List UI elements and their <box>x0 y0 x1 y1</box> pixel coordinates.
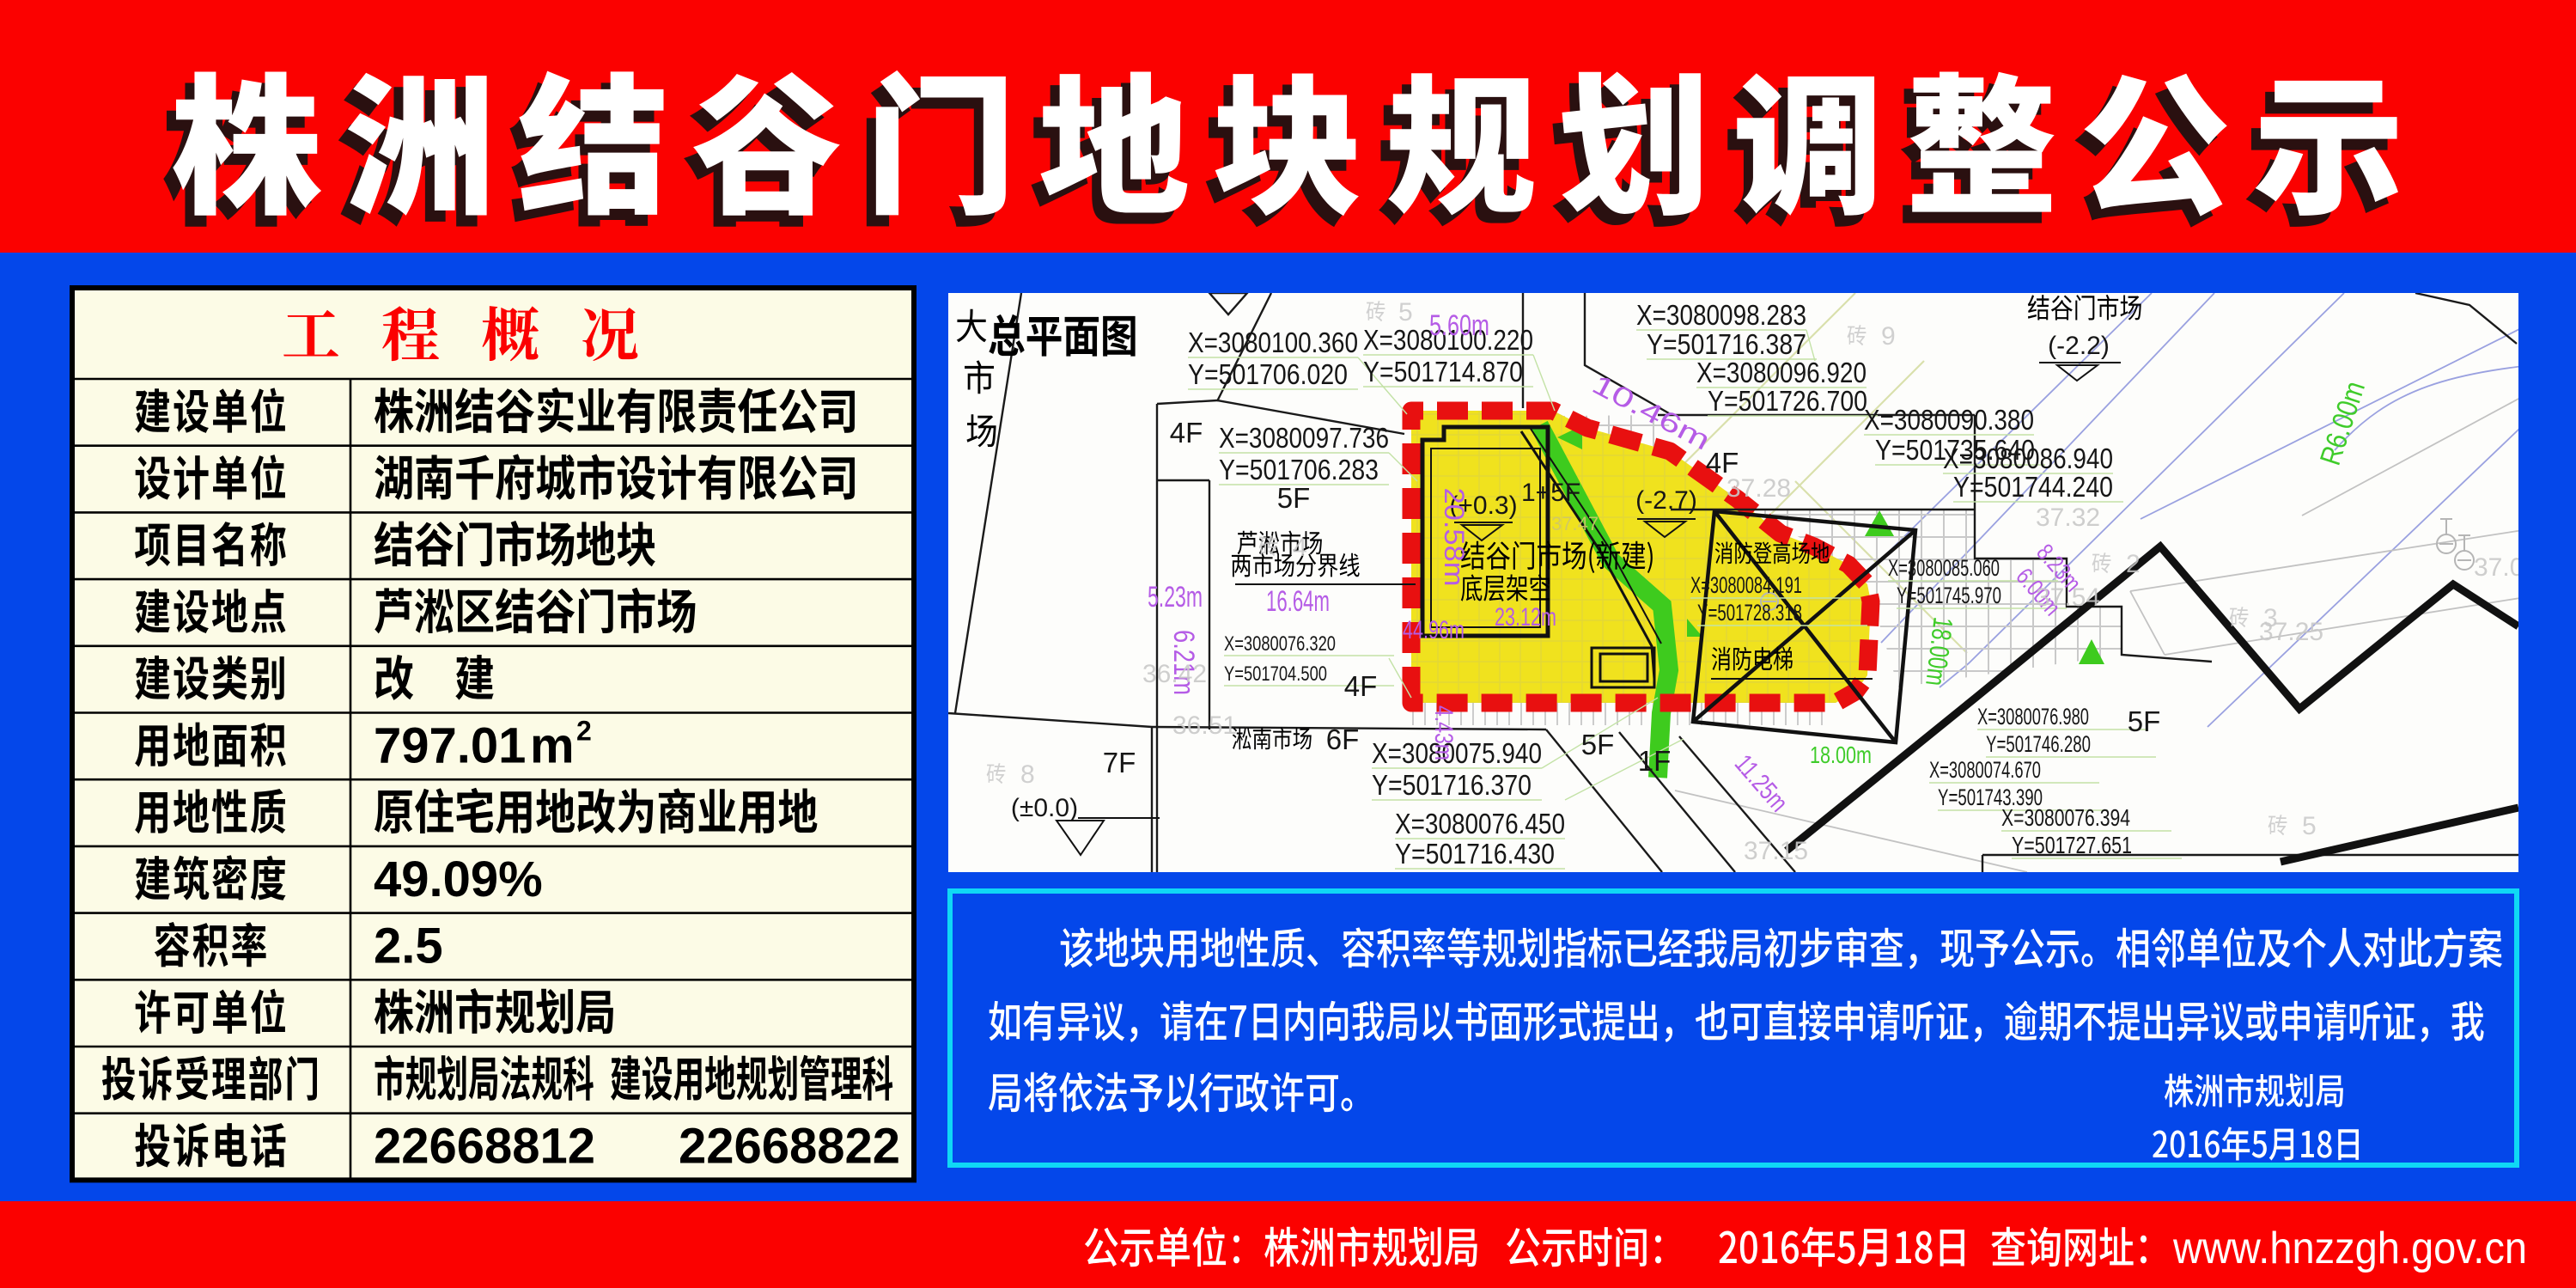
svg-text:Y=501727.651: Y=501727.651 <box>2012 832 2132 858</box>
svg-text:(-2.2): (-2.2) <box>2048 332 2110 360</box>
svg-text:X=3080076.320: X=3080076.320 <box>1224 632 1336 656</box>
svg-text:X=3080096.920: X=3080096.920 <box>1696 357 1867 388</box>
svg-text:Y=501706.283: Y=501706.283 <box>1219 454 1379 485</box>
svg-text:X=3080097.736: X=3080097.736 <box>1219 422 1389 454</box>
svg-text:36.51: 36.51 <box>1172 711 1237 740</box>
svg-text:X=3080085.060: X=3080085.060 <box>1888 555 2000 581</box>
svg-text:7F: 7F <box>1103 747 1136 778</box>
svg-text:4: 4 <box>1293 534 1307 562</box>
svg-text:8: 8 <box>1020 760 1035 789</box>
svg-text:X=3080076.450: X=3080076.450 <box>1395 808 1565 839</box>
svg-text:23.12m: 23.12m <box>1495 603 1556 632</box>
svg-text:797.01: 797.01 <box>374 717 526 773</box>
svg-text:Y=501716.387: Y=501716.387 <box>1647 328 1806 360</box>
svg-text:9: 9 <box>1881 322 1896 351</box>
svg-text:Y=501706.020: Y=501706.020 <box>1188 358 1348 390</box>
svg-text:3: 3 <box>2263 604 2278 632</box>
svg-text:2: 2 <box>2126 550 2141 578</box>
svg-text:5: 5 <box>2302 812 2317 840</box>
svg-text:20.58m: 20.58m <box>1439 488 1470 587</box>
svg-text:4.43m: 4.43m <box>1429 705 1458 760</box>
svg-text:(-2.7): (-2.7) <box>1635 486 1697 515</box>
svg-text:6F: 6F <box>1326 723 1360 755</box>
svg-text:4F: 4F <box>1344 670 1378 702</box>
svg-text:49.09%: 49.09% <box>374 852 543 907</box>
svg-text:Y=501714.870: Y=501714.870 <box>1363 356 1523 388</box>
svg-text:X=3080084.191: X=3080084.191 <box>1690 572 1802 598</box>
svg-text:m: m <box>530 717 575 773</box>
svg-text:5F: 5F <box>2128 705 2161 737</box>
svg-text:X=3080090.380: X=3080090.380 <box>1864 404 2034 436</box>
svg-text:37.54: 37.54 <box>2036 583 2100 612</box>
svg-text:X=3080086.940: X=3080086.940 <box>1943 443 2113 474</box>
svg-text:36.42: 36.42 <box>1142 660 1207 688</box>
svg-text:16.64m: 16.64m <box>1266 585 1330 618</box>
svg-text:37.32: 37.32 <box>2036 504 2100 532</box>
svg-text:5.60m: 5.60m <box>1429 309 1489 342</box>
svg-text:Y=501745.970: Y=501745.970 <box>1897 583 2001 608</box>
svg-text:37.47: 37.47 <box>1551 513 1599 534</box>
svg-text:37.0: 37.0 <box>2474 553 2524 582</box>
svg-text:1+5F: 1+5F <box>1521 479 1580 507</box>
svg-text:22668822: 22668822 <box>679 1119 900 1175</box>
svg-text:1F: 1F <box>1638 745 1672 777</box>
svg-text:5F: 5F <box>1277 482 1311 514</box>
svg-text:44.96m: 44.96m <box>1403 616 1465 644</box>
svg-text:X=3080076.980: X=3080076.980 <box>1977 704 2089 729</box>
svg-text:Y=501726.700: Y=501726.700 <box>1708 385 1867 417</box>
svg-text:37.28: 37.28 <box>1726 474 1791 503</box>
svg-text:Y=501716.430: Y=501716.430 <box>1395 838 1555 870</box>
svg-text:37.15: 37.15 <box>1744 837 1808 865</box>
svg-text:X=3080076.394: X=3080076.394 <box>2001 804 2130 831</box>
svg-text:2: 2 <box>576 715 592 746</box>
svg-text:22668812: 22668812 <box>374 1119 595 1175</box>
svg-text:18.00m: 18.00m <box>1810 742 1872 768</box>
svg-text:X=3080100.360: X=3080100.360 <box>1188 327 1358 358</box>
svg-text:Y=501746.280: Y=501746.280 <box>1986 731 2091 757</box>
svg-text:5.23m: 5.23m <box>1148 581 1203 613</box>
svg-text:X=3080074.670: X=3080074.670 <box>1929 757 2041 783</box>
svg-text:Y=501744.240: Y=501744.240 <box>1953 471 2113 503</box>
svg-text:Y=501704.500: Y=501704.500 <box>1224 662 1327 686</box>
svg-text:2.5: 2.5 <box>374 918 443 974</box>
svg-text:4F: 4F <box>1170 417 1203 449</box>
svg-text:(±0.0): (±0.0) <box>1011 794 1078 822</box>
svg-text:5: 5 <box>1398 298 1413 327</box>
svg-text:www.hnzzgh.gov.cn: www.hnzzgh.gov.cn <box>2172 1224 2527 1273</box>
svg-text:X=3080098.283: X=3080098.283 <box>1636 299 1806 331</box>
svg-text:Y=501716.370: Y=501716.370 <box>1372 769 1532 801</box>
svg-text:5F: 5F <box>1581 729 1615 760</box>
svg-text:Y=501728.318: Y=501728.318 <box>1697 600 1802 626</box>
